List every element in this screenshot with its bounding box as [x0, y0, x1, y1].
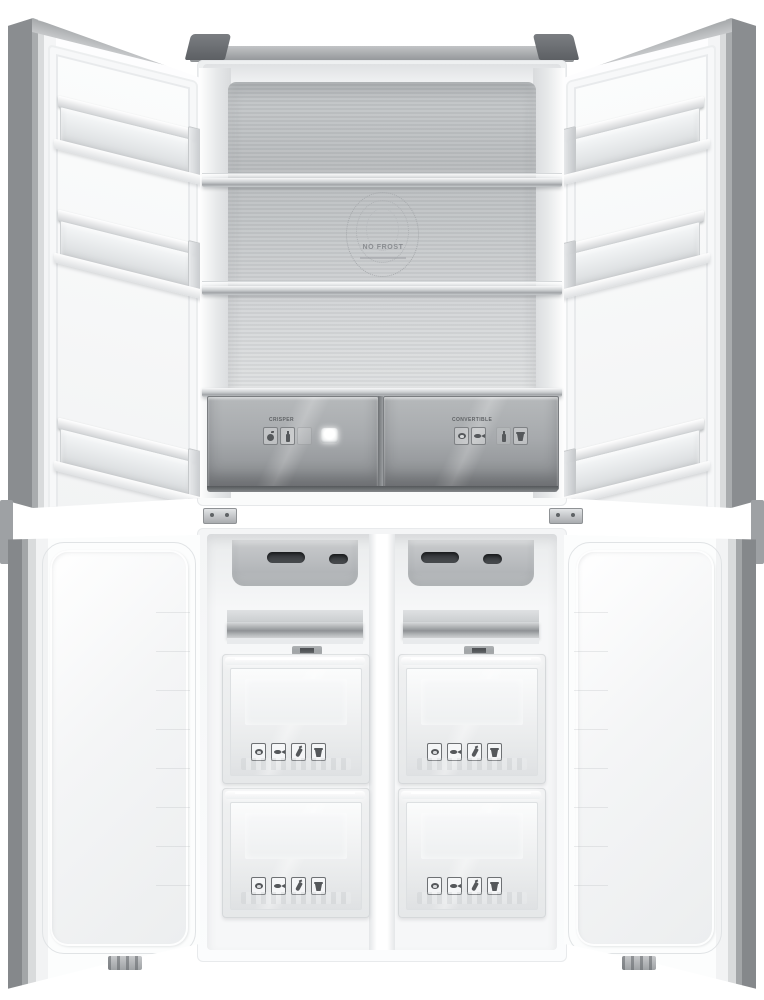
fridge-door-right [564, 16, 756, 510]
dessert-icon [513, 427, 528, 445]
drawer-base-shadow [207, 486, 558, 492]
drawer-rim [401, 791, 541, 799]
drawer-ribbed-floor [241, 758, 351, 770]
drawer-ribbed-floor [417, 758, 527, 770]
door-bin [58, 95, 198, 188]
drawer-interior [421, 813, 523, 859]
door-bin [566, 417, 706, 510]
freezer-drawer-upper-right [398, 654, 546, 784]
freezer-shelf-tray-left [227, 610, 363, 644]
freezer-drawer-upper-left [222, 654, 370, 784]
top-hinge-cover-right [533, 34, 579, 60]
door-foot-left [108, 956, 142, 970]
logo-subtext-line [360, 257, 406, 259]
door-bin [566, 95, 706, 188]
drawer-rim [225, 657, 365, 665]
meat-icon [454, 427, 469, 445]
drawer-window [406, 668, 538, 776]
convertible-label-block: CONVERTIBLE [452, 417, 562, 451]
freezer-vent-panel-right [408, 540, 534, 586]
tray-metal-band [403, 622, 539, 638]
drawer-rim [225, 791, 365, 799]
freezer-shelf-tray-right [403, 610, 539, 644]
ghost-icon [297, 427, 312, 445]
tray-lip [227, 638, 363, 644]
door-rib-lines [156, 574, 190, 914]
convertible-label: CONVERTIBLE [452, 417, 492, 423]
door-bin [566, 209, 706, 302]
vent-slot [329, 554, 348, 564]
fish-icon [471, 427, 486, 445]
freezer-door-right [564, 534, 756, 992]
glass-shelf-2-trim [202, 286, 562, 295]
tray-top [403, 610, 539, 622]
drawer-rim [401, 657, 541, 665]
middle-hinge-right [549, 508, 583, 524]
freezer-drawer-lower-right [398, 788, 546, 918]
door-bin-group [560, 16, 712, 548]
fruit-icon [263, 427, 278, 445]
drawer-interior [421, 679, 523, 725]
drawer-window [230, 668, 362, 776]
no-frost-label: NO FROST [346, 244, 420, 254]
freezer-drawer-lower-left [222, 788, 370, 918]
door-foot-right [622, 956, 656, 970]
drawer-divider [378, 396, 383, 488]
bottle-icon [496, 427, 511, 445]
vent-slot [483, 554, 502, 564]
drawer-ribbed-floor [241, 892, 351, 904]
tray-top [227, 610, 363, 622]
crisper-label-block: CRISPER [263, 417, 363, 451]
door-rib-lines [574, 574, 608, 914]
vent-slot [421, 552, 459, 563]
drawer-ribbed-floor [417, 892, 527, 904]
drawer-interior [245, 813, 347, 859]
door-bin [58, 209, 198, 302]
no-frost-logo: NO FROST [346, 192, 420, 278]
drawer-window [406, 802, 538, 910]
tray-lip [403, 638, 539, 644]
freezer-door-left [8, 534, 200, 992]
drawer-interior [245, 679, 347, 725]
crisper-label: CRISPER [269, 417, 294, 423]
middle-hinge-left [203, 508, 237, 524]
bottle-icon [280, 427, 295, 445]
door-bin-group [52, 16, 204, 548]
center-mullion [369, 534, 395, 950]
refrigerator-product-photo: NO FROST CRISPER CONVERTIBLE [0, 0, 764, 1000]
white-round-button [321, 428, 338, 443]
top-hinge-cover-left [185, 34, 231, 60]
tray-metal-band [227, 622, 363, 638]
fridge-door-left [8, 16, 200, 510]
glass-shelf-1-trim [202, 178, 562, 187]
drawer-window [230, 802, 362, 910]
door-bin [58, 417, 198, 510]
vent-slot [267, 552, 305, 563]
